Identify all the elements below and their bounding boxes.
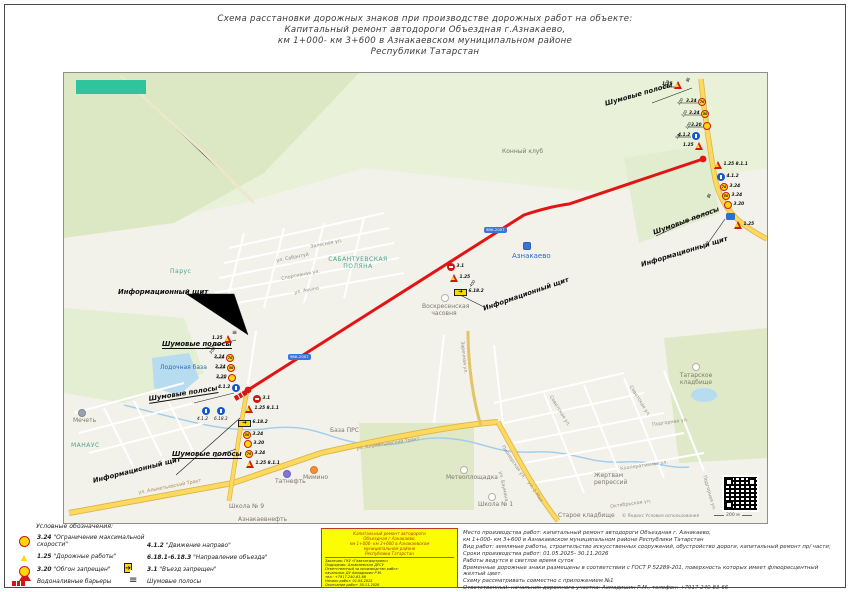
scale-label: 200 м [726, 513, 740, 518]
sign-roadworks: 1.25 [683, 142, 703, 150]
sign-move-right: 4.1.2 [717, 173, 739, 181]
sign-no-overtaking: 3.20 [724, 201, 744, 209]
legend-item-412: 4.1.2 "Движение направо" [147, 543, 231, 550]
sign-no-overtaking: 3.20 [244, 440, 264, 448]
title-line-4: Республики Татарстан [0, 47, 850, 58]
road-number-badge: 98К-2007 [484, 227, 507, 233]
legend-heading: Условные обозначения: [36, 523, 113, 530]
poi-repress: Жертвам репрессий [594, 473, 634, 486]
legend-rumble-strips-icon: ≡ [129, 575, 137, 586]
legend-water-barriers-icon [12, 581, 25, 586]
road-works-scheme-sheet: { "page": { "title": [ "Схема расстановк… [0, 0, 850, 592]
map-attribution: © Яндекс Условия использования [622, 514, 699, 519]
sign-detour-plate: ➔6.18.2 [454, 289, 484, 296]
sign-speed-limit: 703.24 [214, 354, 234, 362]
tat-cemetery-icon [692, 363, 700, 371]
sign-roadworks: 1.258.1.1 [246, 460, 280, 468]
note-line: Работы ведутся в светлое время суток [463, 558, 835, 565]
sign-speed-limit: 503.24 [215, 364, 235, 372]
poi-parus: Парус [170, 269, 191, 276]
sign-roadworks: 1.25 [450, 274, 470, 282]
poi-meteo: Метеоплощадка [446, 475, 498, 482]
sign-code: 6.18.3 [214, 417, 228, 422]
sign-move-right: 4.1.2 [678, 132, 700, 140]
sign-no-overtaking: 3.20 [216, 374, 236, 382]
sign-detour-plate: ➔6.18.2 [238, 420, 268, 427]
sign-no-entry: 3.1 [253, 395, 270, 403]
poi-school9: Школа № 9 [229, 504, 264, 511]
callout-info-board-1: Информационный щит [118, 288, 208, 296]
poi-mosque: Мечеть [73, 418, 96, 425]
poi-old-cemetery: Старое кладбище [558, 513, 615, 520]
tatneft-icon [283, 470, 291, 478]
legend-item-rumble: Шумовые полосы [147, 579, 201, 586]
aznakaevo-icon [523, 242, 531, 250]
scheme-title: Схема расстановки дорожных знаков при пр… [0, 14, 850, 58]
note-line: Схему рассматривать совместно с приложен… [463, 578, 835, 585]
poi-tatneft: Татнефть [275, 479, 306, 486]
sign-speed-limit: 703.24 [686, 98, 706, 106]
poi-tat-cemetery: Татарское кладбище [674, 373, 718, 386]
sign-code: 4.1.2 [197, 417, 208, 422]
sign-no-entry: 3.1 [447, 263, 464, 271]
qr-code [724, 477, 757, 510]
legend-item-324: 3.24 "Ограничение максимальной скорости" [37, 535, 153, 549]
legend-item-barriers: Водоналивные барьеры [37, 579, 111, 586]
sign-roadworks: 1.258.1.1 [714, 161, 748, 169]
sign-move-right: 4.1.2 [218, 384, 240, 392]
stamp-details: Заказчик: ГКУ «Главтатдортранс» Подрядчи… [325, 557, 454, 588]
poi-manaus: МАНАУС [71, 443, 100, 450]
legend-no-overtaking-icon [19, 566, 30, 577]
poi-chapel: Воскресенская часовня [422, 304, 466, 317]
callout-rumble-3: Шумовые полосы [172, 450, 242, 459]
sign-detour-direction [217, 407, 225, 415]
highlight-block [76, 80, 146, 94]
map-scale-bar: 200 м [714, 513, 752, 518]
stamp-header: Капитальный ремонт автодороги Объездная … [325, 531, 454, 556]
note-line: Вид работ: земляные работы, строительств… [463, 544, 835, 551]
poi-prs-base: База ПРС [330, 428, 359, 435]
legend-item-618: 6.18.1-6.18.3 "Направление объезда" [147, 555, 268, 562]
note-line: Место производства работ: капитальный ре… [463, 530, 835, 537]
sign-roadworks: 1.25 [734, 221, 754, 229]
legend-item-31: 3.1 "Въезд запрещен" [147, 567, 217, 574]
scheme-map: Информационный щит Информационный щит Ин… [63, 72, 768, 524]
sign-speed-limit: 703.24 [720, 183, 740, 191]
legend-item-320: 3.20 "Обгон запрещен" [37, 567, 111, 574]
chapel-icon [441, 294, 449, 302]
rumble-strips-mark: ≡ [232, 329, 236, 336]
title-line-1: Схема расстановки дорожных знаков при пр… [0, 14, 850, 25]
road-number-badge: 98К-2007 [288, 354, 311, 360]
legend-speed-limit-icon [19, 536, 30, 547]
sign-roadworks: 1.25 [212, 335, 232, 343]
sign-no-overtaking: 3.20 [691, 122, 711, 130]
work-notes: Место производства работ: капитальный ре… [463, 530, 835, 592]
pond [691, 388, 717, 402]
sign-speed-limit: 503.24 [689, 110, 709, 118]
poi-boat-base: Лодочная база [160, 365, 207, 372]
note-line: км 1+000- км 3+600 в Азнакаевском муници… [463, 537, 835, 544]
note-line: Временные дорожные знаки размещены в соо… [463, 565, 835, 579]
school1-icon [488, 493, 496, 501]
title-line-3: км 1+000- км 3+600 в Азнакаевском муници… [0, 36, 850, 47]
information-board-icon [726, 213, 735, 220]
map-graphics [64, 73, 767, 523]
title-line-2: Капитальный ремонт автодороги Объездная … [0, 25, 850, 36]
mimino-icon [310, 466, 318, 474]
poi-azneft: Азнакаевнефть [238, 517, 287, 524]
mosque-icon [78, 409, 86, 417]
sign-speed-limit: 503.24 [722, 192, 742, 200]
poi-school1: Школа № 1 [478, 502, 513, 509]
sign-move-right [202, 407, 210, 415]
poi-aznakaevo: Азнакаево [512, 253, 551, 260]
meteo-icon [460, 466, 468, 474]
sign-roadworks: 1.258.1.1 [245, 405, 279, 413]
note-line: Ответственный: начальник дорожного участ… [463, 585, 835, 592]
route-end-point [700, 156, 707, 163]
legend-item-125: 1.25 "Дорожные работы" [37, 554, 116, 561]
poi-konny-klub: Конный клуб [502, 149, 543, 156]
sign-speed-limit: 503.24 [243, 431, 263, 439]
note-line: Сроки производства работ: 01.05.2025- 30… [463, 551, 835, 558]
poi-polyana: САБАНТУЕВСКАЯ ПОЛЯНА [326, 257, 390, 270]
title-stamp-box: Капитальный ремонт автодороги Объездная … [321, 528, 458, 588]
poi-mimino: Мимино [303, 475, 328, 482]
sign-speed-limit: 703.24 [245, 450, 265, 458]
